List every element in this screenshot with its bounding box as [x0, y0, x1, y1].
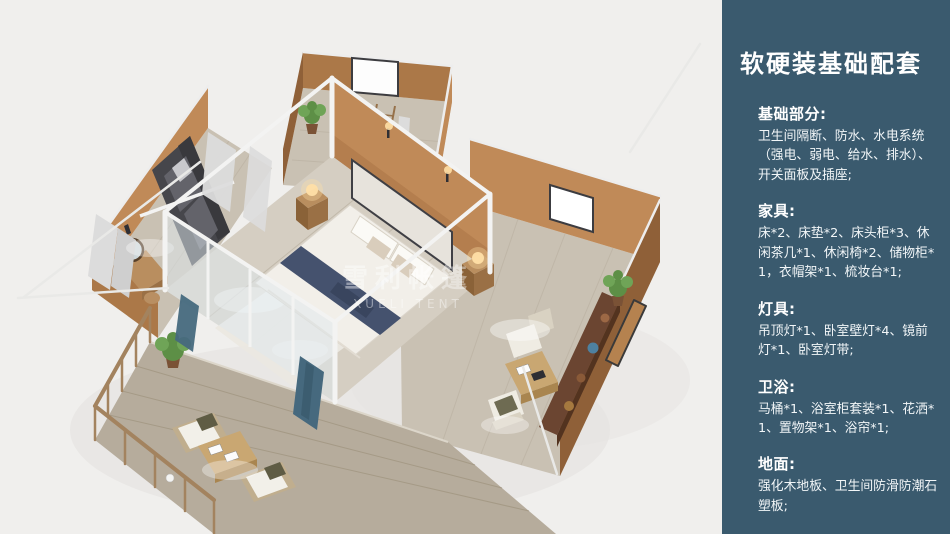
section-floor-heading: 地面: [758, 453, 938, 474]
slide: 雪利帐篷 XUELI TENT 软硬装基础配套 基础部分: 卫生间隔断、防水、水… [0, 0, 950, 534]
section-basics-body: 卫生间隔断、防水、水电系统（强电、弱电、给水、排水）、开关面板及插座; [758, 127, 938, 185]
section-basics: 基础部分: 卫生间隔断、防水、水电系统（强电、弱电、给水、排水）、开关面板及插座… [758, 103, 938, 185]
section-bath: 卫浴: 马桶*1、浴室柜套装*1、花洒*1、置物架*1、浴帘*1; [758, 376, 938, 439]
deck-lamp [166, 474, 174, 482]
section-lighting: 灯具: 吊顶灯*1、卧室壁灯*4、镜前灯*1、卧室灯带; [758, 298, 938, 361]
section-furniture: 家具: 床*2、床垫*2、床头柜*3、休闲茶几*1、休闲椅*2、储物柜*1，衣帽… [758, 200, 938, 282]
render-area: 雪利帐篷 XUELI TENT [0, 0, 722, 534]
section-lighting-body: 吊顶灯*1、卧室壁灯*4、镜前灯*1、卧室灯带; [758, 322, 938, 361]
info-panel: 软硬装基础配套 基础部分: 卫生间隔断、防水、水电系统（强电、弱电、给水、排水）… [722, 0, 950, 534]
section-bath-heading: 卫浴: [758, 376, 938, 397]
section-furniture-heading: 家具: [758, 200, 938, 221]
bathroom-mirror [352, 58, 398, 96]
section-bath-body: 马桶*1、浴室柜套装*1、花洒*1、置物架*1、浴帘*1; [758, 400, 938, 439]
section-basics-heading: 基础部分: [758, 103, 938, 124]
floorplan-illustration [0, 0, 722, 534]
section-lighting-heading: 灯具: [758, 298, 938, 319]
panel-title: 软硬装基础配套 [740, 44, 938, 79]
section-floor-body: 强化木地板、卫生间防滑防潮石塑板; [758, 477, 938, 516]
section-floor: 地面: 强化木地板、卫生间防滑防潮石塑板; [758, 453, 938, 516]
section-furniture-body: 床*2、床垫*2、床头柜*3、休闲茶几*1、休闲椅*2、储物柜*1，衣帽架*1、… [758, 224, 938, 282]
